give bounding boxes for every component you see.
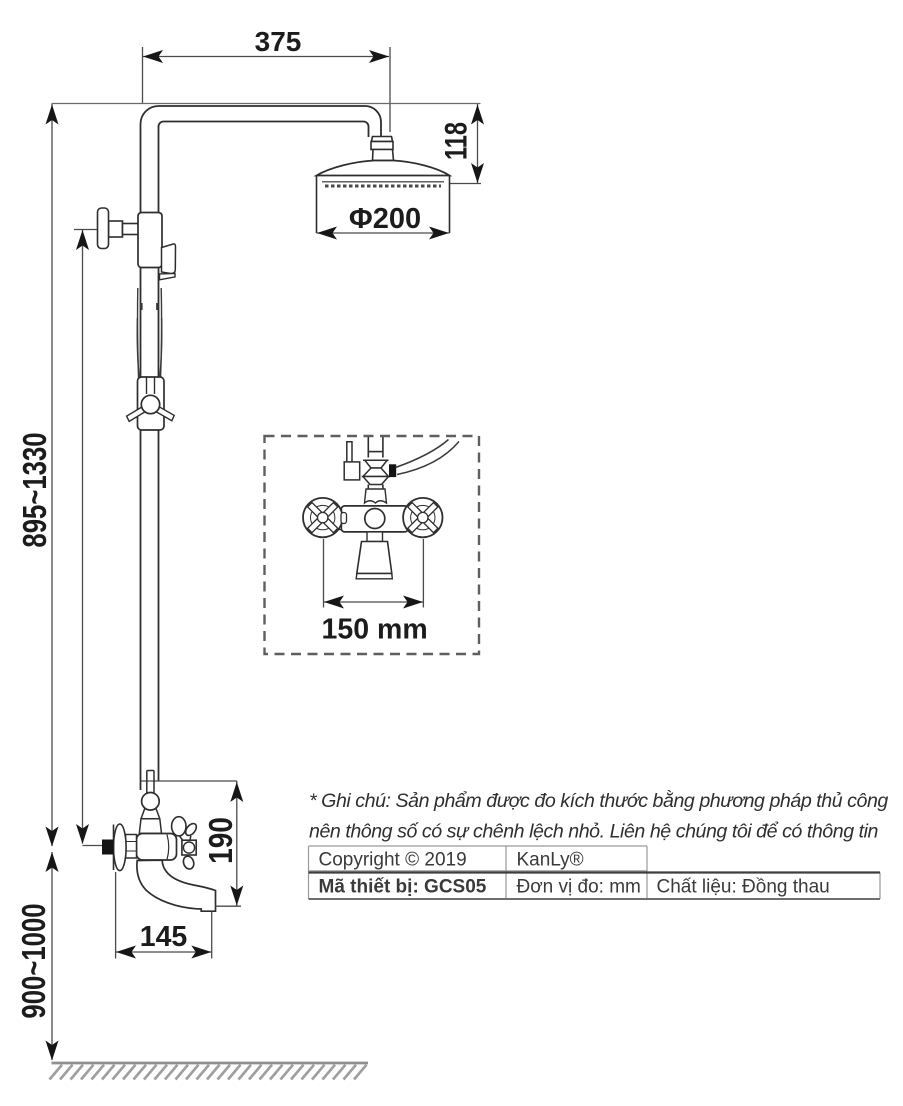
svg-text:Copyright © 2019: Copyright © 2019 [319, 850, 467, 871]
svg-text:118: 118 [438, 122, 473, 160]
svg-text:nên thông số có sự chênh lệch: nên thông số có sự chênh lệch nhỏ. Liên … [309, 821, 878, 843]
svg-text:145: 145 [140, 921, 188, 953]
svg-text:150 mm: 150 mm [322, 614, 428, 646]
svg-text:375: 375 [255, 26, 302, 57]
svg-text:Đơn vị đo: mm: Đơn vị đo: mm [517, 877, 641, 898]
svg-text:Φ200: Φ200 [349, 203, 421, 235]
svg-text:KanLy®: KanLy® [517, 850, 584, 871]
svg-text:190: 190 [203, 817, 240, 864]
svg-text:Chất liệu: Đồng thau: Chất liệu: Đồng thau [657, 877, 830, 898]
svg-text:Mã thiết bị: GCS05: Mã thiết bị: GCS05 [319, 877, 487, 898]
svg-text:* Ghi chú: Sản phẩm được đo kí: * Ghi chú: Sản phẩm được đo kích thước b… [309, 789, 888, 812]
svg-text:895~1330: 895~1330 [17, 432, 54, 547]
svg-text:900~1000: 900~1000 [16, 903, 53, 1018]
